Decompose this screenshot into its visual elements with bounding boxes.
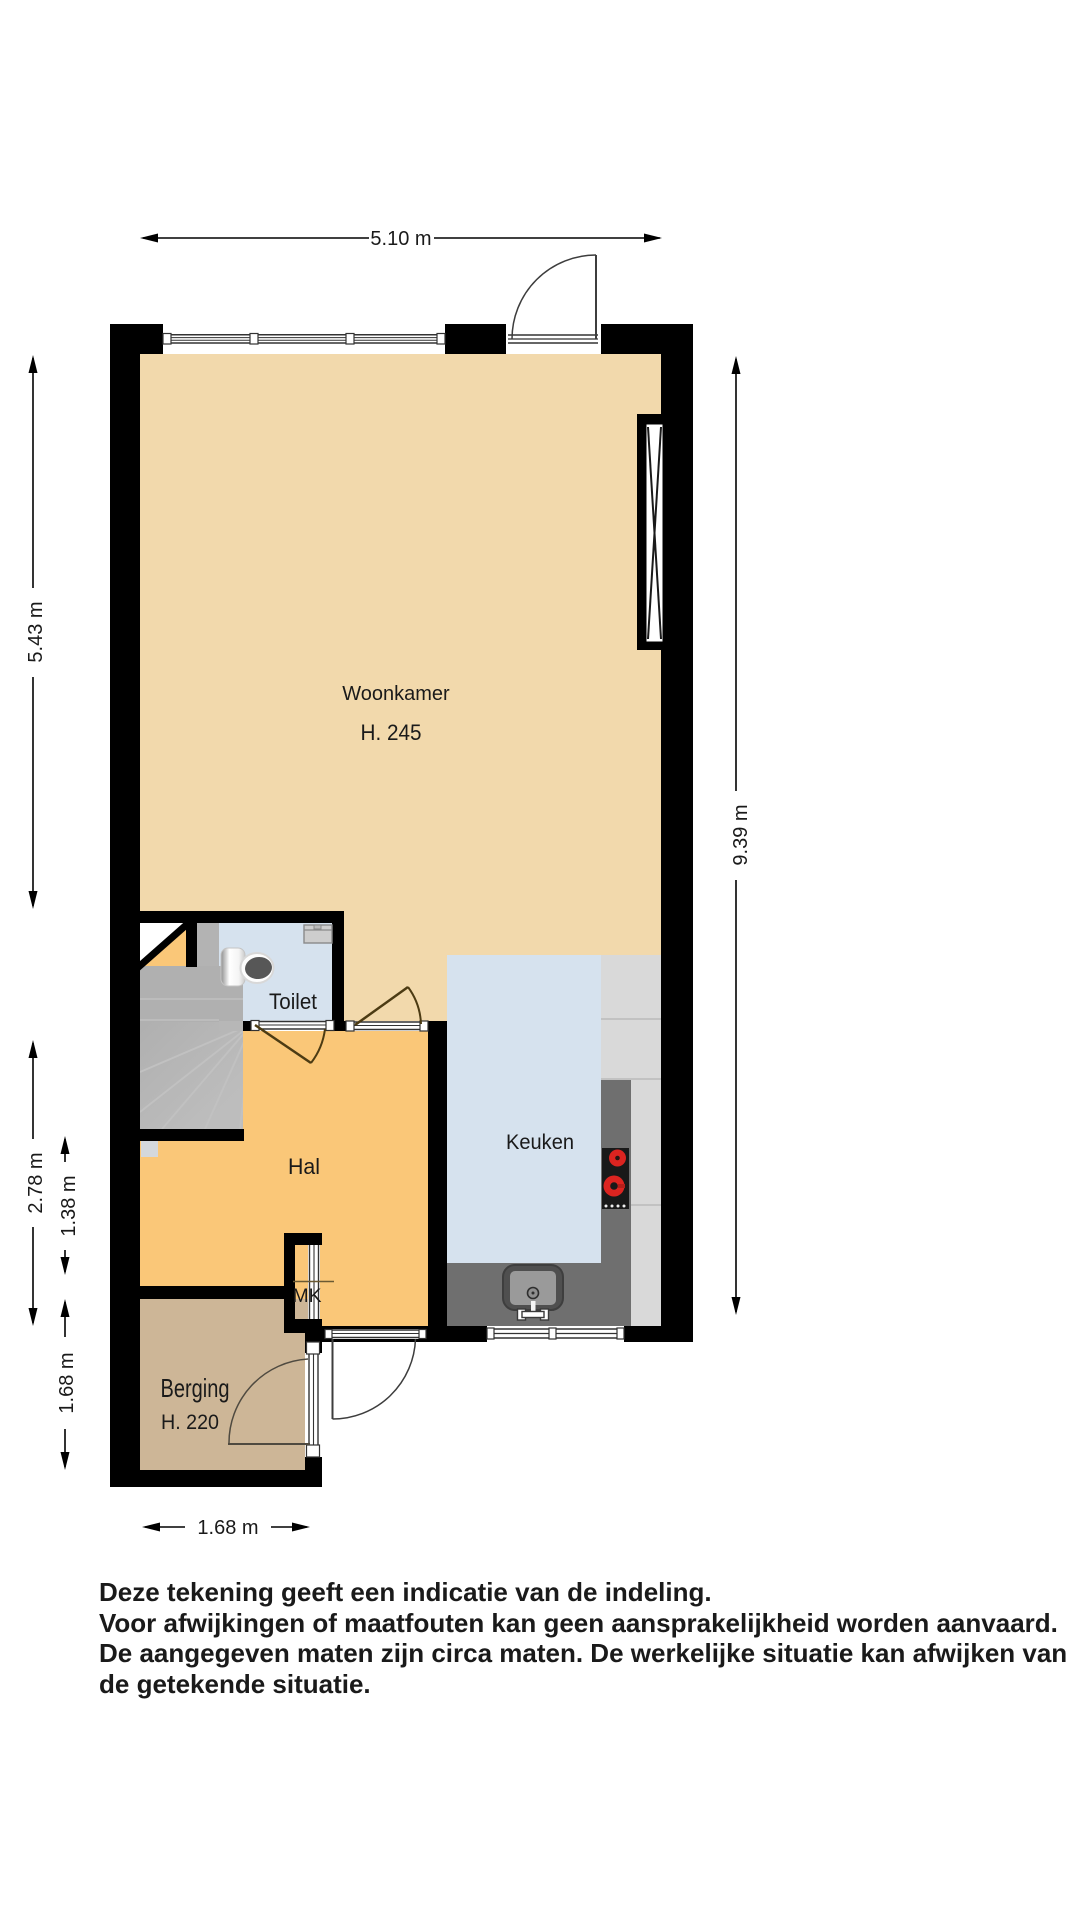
svg-text:1.68 m: 1.68 m bbox=[197, 1517, 258, 1539]
svg-text:Deze tekening geeft een indica: Deze tekening geeft een indicatie van de… bbox=[99, 1577, 712, 1607]
svg-text:Berging: Berging bbox=[161, 1373, 230, 1403]
svg-text:Hal: Hal bbox=[288, 1154, 320, 1179]
svg-text:Keuken: Keuken bbox=[506, 1131, 574, 1154]
svg-text:de getekende situatie.: de getekende situatie. bbox=[99, 1669, 371, 1699]
svg-text:Voor afwijkingen of maatfoute: Voor afwijkingen of maatfouten kan geen … bbox=[99, 1608, 1058, 1638]
svg-text:Woonkamer: Woonkamer bbox=[342, 683, 450, 705]
svg-text:MK: MK bbox=[293, 1286, 322, 1307]
svg-text:H. 245: H. 245 bbox=[361, 720, 422, 745]
svg-text:Toilet: Toilet bbox=[269, 989, 317, 1014]
svg-text:H. 220: H. 220 bbox=[161, 1411, 219, 1434]
svg-text:2.78 m: 2.78 m bbox=[25, 1152, 47, 1213]
svg-text:9.39 m: 9.39 m bbox=[730, 804, 752, 865]
svg-text:De aangegeven maten zijn circa: De aangegeven maten zijn circa maten. De… bbox=[99, 1638, 1067, 1668]
svg-text:1.38 m: 1.38 m bbox=[58, 1175, 80, 1236]
svg-text:1.68 m: 1.68 m bbox=[56, 1352, 78, 1413]
svg-text:5.43 m: 5.43 m bbox=[25, 601, 47, 662]
svg-text:5.10 m: 5.10 m bbox=[370, 228, 431, 250]
